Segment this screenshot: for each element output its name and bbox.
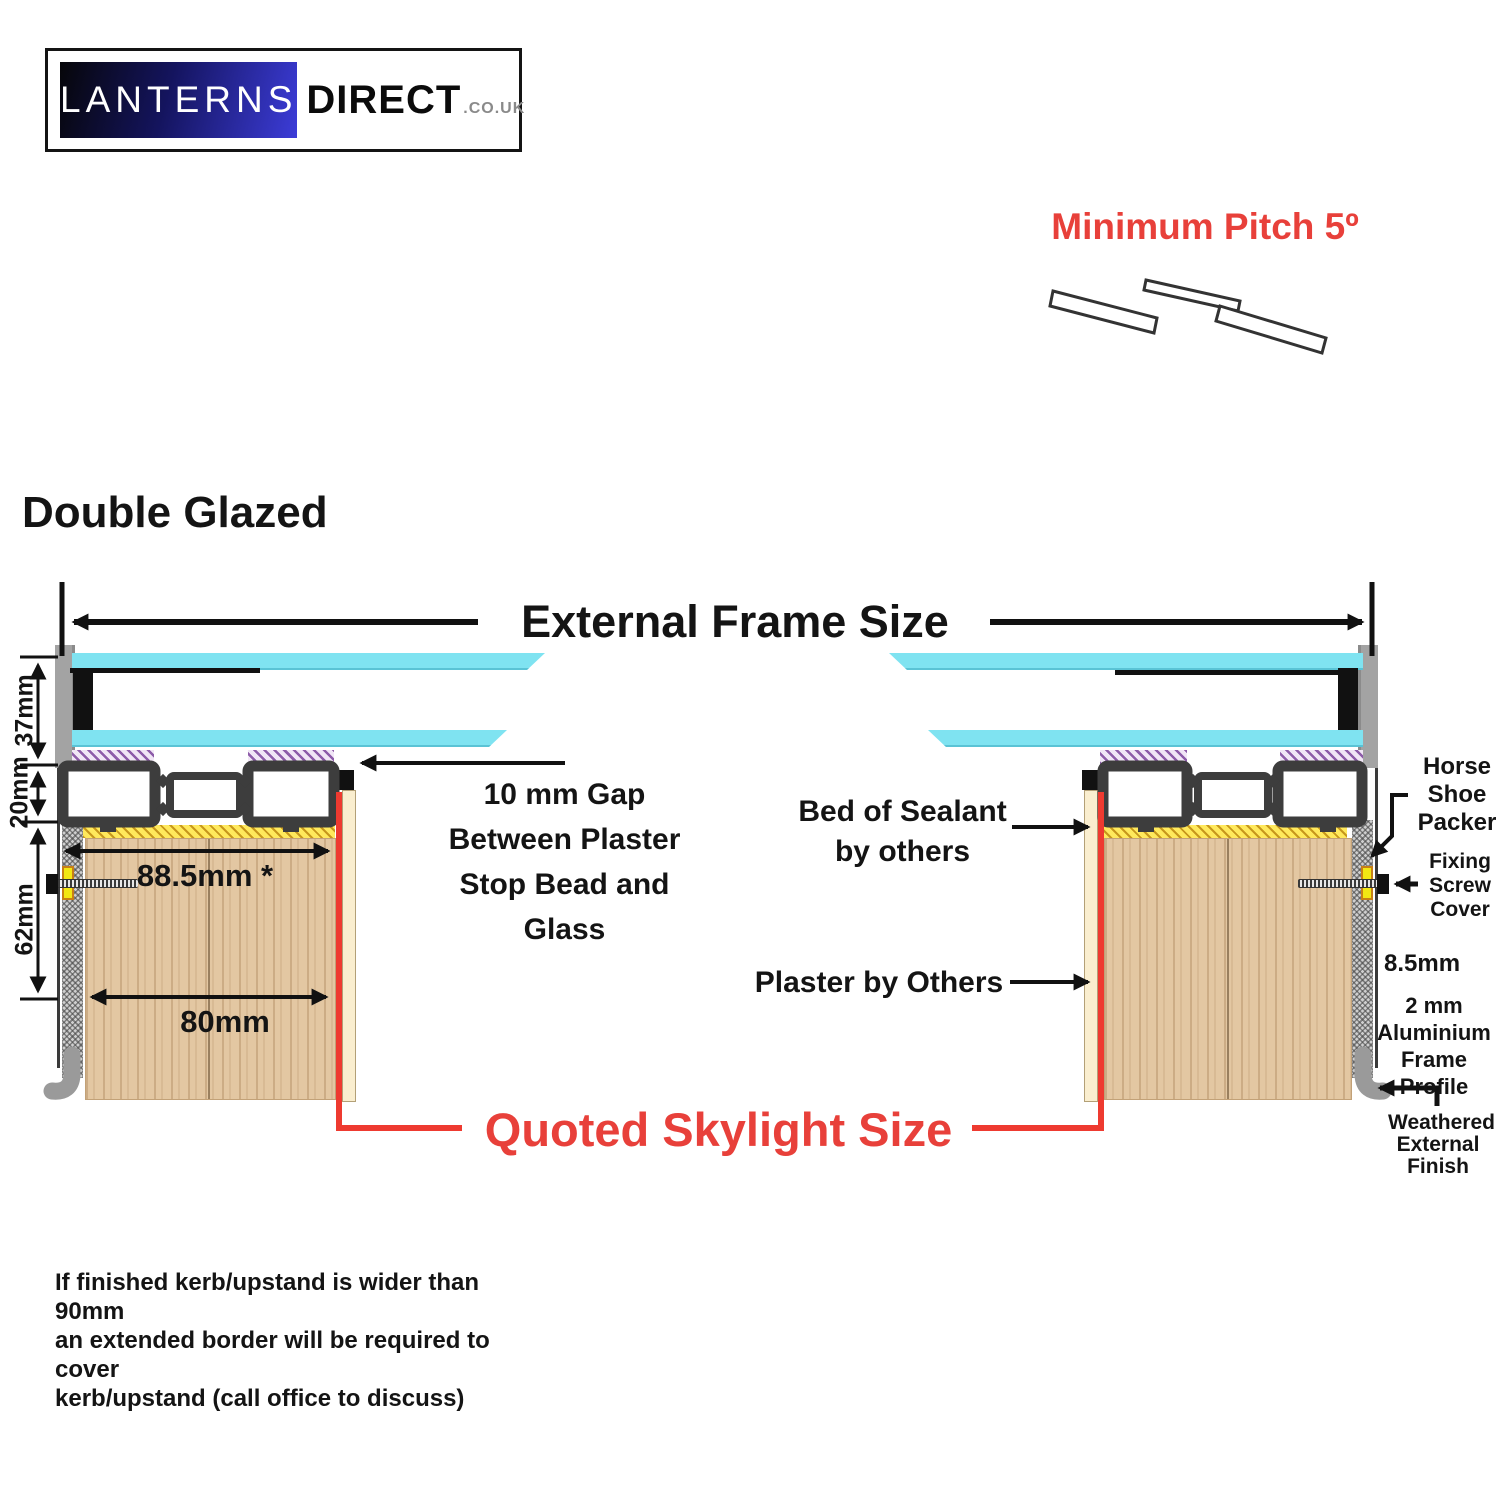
logo-blue-box: LANTERNS (60, 62, 297, 138)
minimum-pitch-label: Minimum Pitch 5º (1020, 206, 1390, 248)
dimension-80mm: 80mm (160, 1004, 290, 1040)
aluminium-profile-annotation: 2 mm Aluminium Frame Profile (1368, 992, 1500, 1100)
right-inner-glass-pane (928, 730, 1363, 747)
gap-annotation: 10 mm Gap Between Plaster Stop Bead and … (437, 772, 692, 952)
left-plaster-stop-bead (342, 790, 356, 1102)
right-glass-spacer-bar (1338, 668, 1358, 730)
logo-tld-text: .CO.UK (463, 100, 525, 118)
dimension-88-5mm: 88.5mm * (120, 858, 290, 894)
left-screw-cover-cap (46, 874, 58, 894)
right-glazing-gasket-line (1115, 670, 1340, 675)
right-timber-kerb (1104, 838, 1352, 1100)
quoted-skylight-size-label: Quoted Skylight Size (466, 1102, 971, 1157)
right-glazing-tape-inner (1100, 750, 1187, 765)
dimension-62mm: 62mm (11, 888, 40, 956)
fixing-screw-cover-annotation: Fixing Screw Cover (1422, 850, 1498, 922)
right-glass-stop-block (1082, 770, 1100, 790)
skylight-section-diagram: LANTERNS DIRECT .CO.UK (0, 0, 1500, 1500)
plaster-annotation: Plaster by Others (748, 966, 1010, 1000)
right-screw-cover-cap (1377, 874, 1389, 894)
left-aluminium-profile (63, 766, 334, 832)
right-fixing-screw (1298, 879, 1386, 888)
dimension-8-5mm: 8.5mm (1384, 950, 1460, 978)
right-plaster-stop-bead (1084, 790, 1098, 1102)
left-aluminium-skin-line (57, 768, 60, 1068)
left-glazing-gasket-line (70, 668, 260, 673)
logo-direct-text: DIRECT (306, 78, 461, 123)
minimum-pitch-sketch (1050, 280, 1326, 353)
left-glazing-tape-outer (72, 750, 154, 765)
dimension-37mm: 37mm (11, 679, 40, 747)
left-frame-profile-strip (62, 820, 83, 1078)
right-sealant-bed (1100, 825, 1347, 838)
right-kerb-joint-line (1227, 839, 1229, 1099)
dimension-20mm: 20mm (6, 761, 35, 829)
sealant-annotation: Bed of Sealant by others (785, 792, 1020, 872)
logo-brand-text: LANTERNS (60, 79, 297, 121)
section-heading: Double Glazed (22, 488, 328, 538)
left-glazing-tape-inner (248, 750, 334, 765)
weathered-finish-annotation: Weathered External Finish (1388, 1112, 1488, 1178)
external-frame-size-label: External Frame Size (490, 596, 980, 648)
left-glass-stop-block (336, 770, 354, 790)
left-inner-glass-pane (72, 730, 507, 747)
kerb-width-note: If finished kerb/upstand is wider than 9… (55, 1268, 515, 1413)
left-glass-spacer-bar (73, 668, 93, 730)
left-sealant-bed (83, 825, 335, 838)
lanterns-direct-logo: LANTERNS DIRECT .CO.UK (45, 48, 522, 152)
right-aluminium-profile (1103, 766, 1362, 832)
right-glazing-tape-outer (1280, 750, 1363, 765)
horse-shoe-packer-annotation: Horse Shoe Packer (1414, 753, 1500, 837)
right-outer-glass-pane (889, 653, 1363, 670)
